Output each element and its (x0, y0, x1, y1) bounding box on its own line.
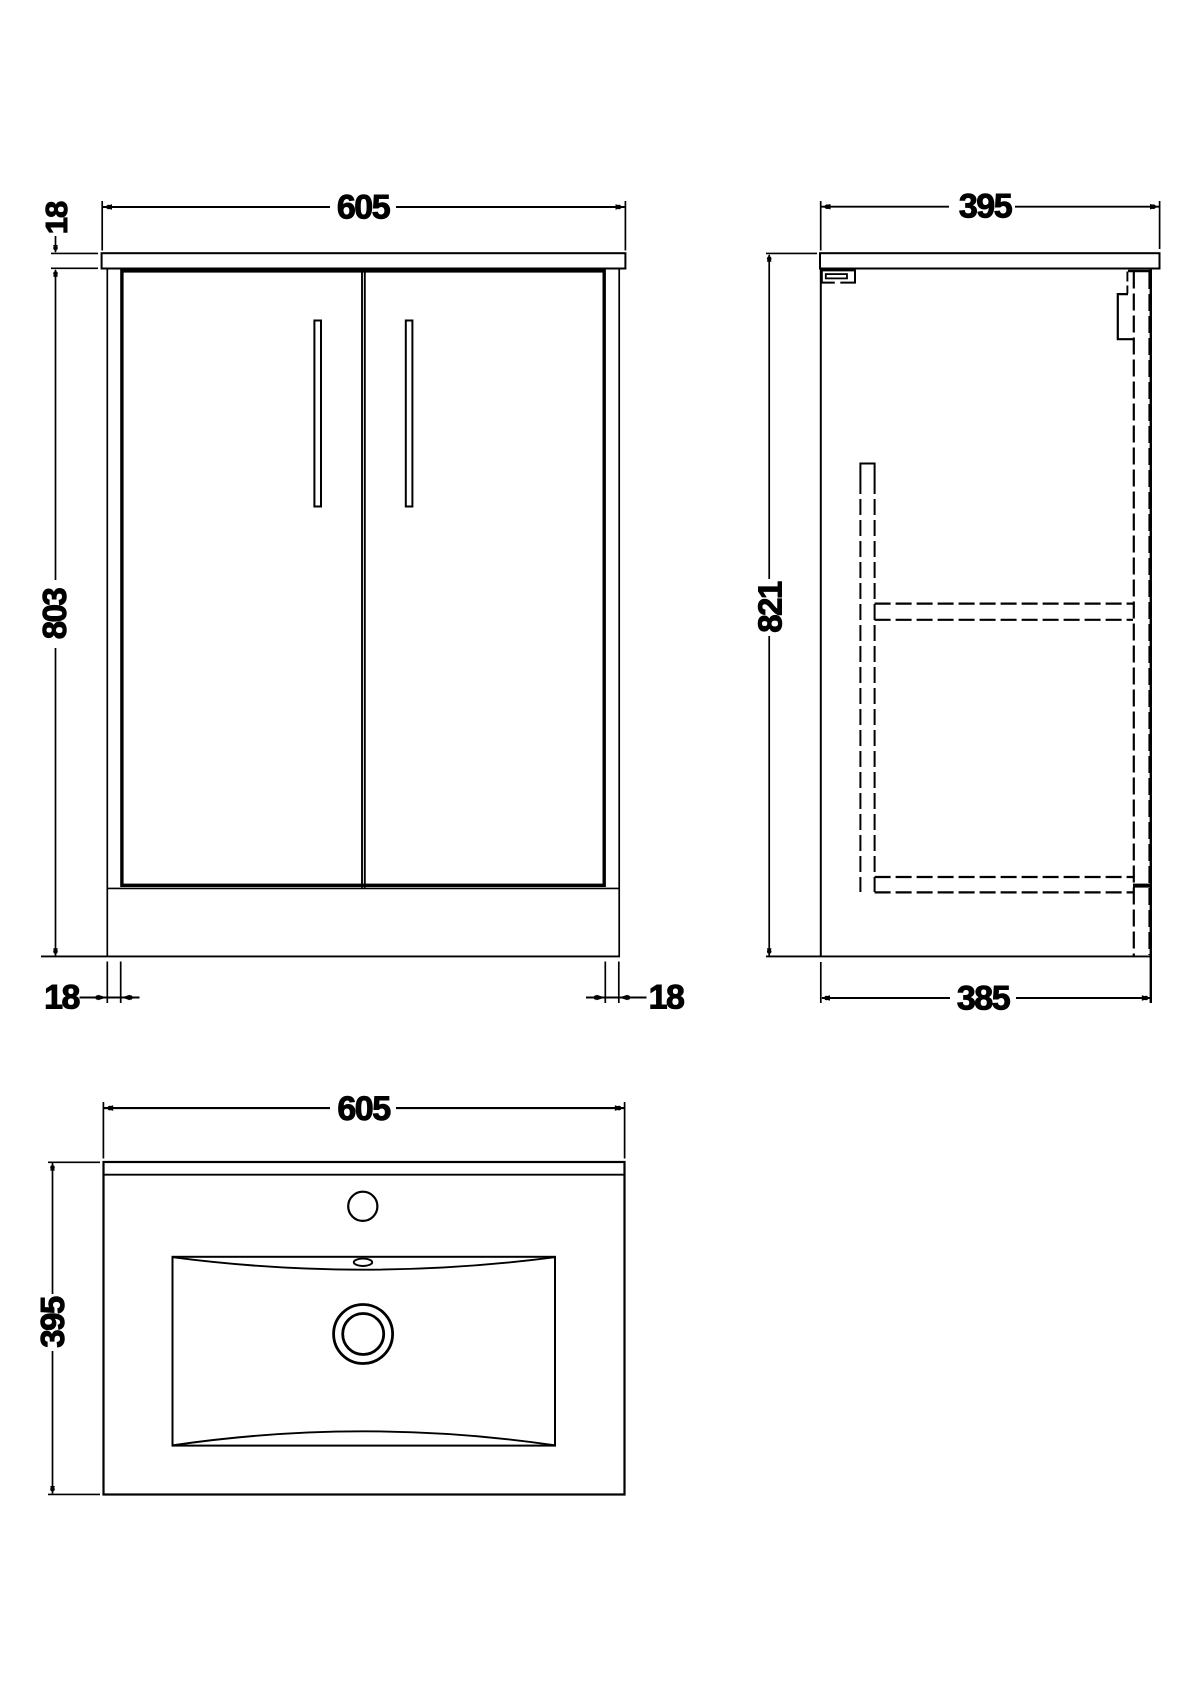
svg-text:605: 605 (337, 189, 390, 227)
svg-text:395: 395 (959, 187, 1012, 225)
svg-text:821: 821 (751, 581, 788, 633)
svg-text:395: 395 (34, 1296, 71, 1348)
svg-text:18: 18 (44, 979, 79, 1017)
svg-text:605: 605 (337, 1090, 390, 1128)
svg-text:18: 18 (39, 201, 74, 234)
svg-text:803: 803 (36, 588, 73, 640)
svg-text:385: 385 (957, 980, 1010, 1018)
svg-text:18: 18 (649, 979, 684, 1017)
